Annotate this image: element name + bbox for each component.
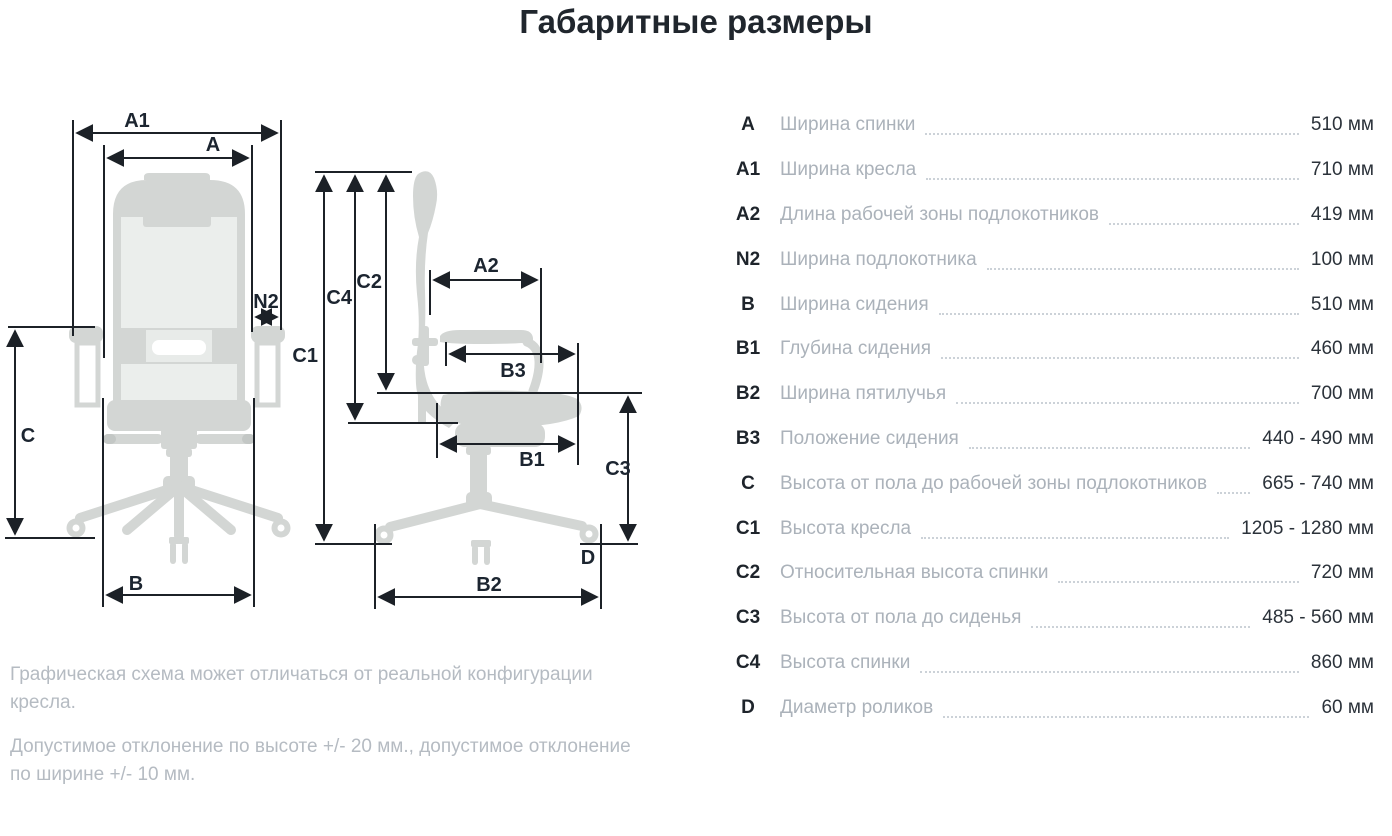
dimension-label: Высота от пола до сиденья <box>780 607 1021 629</box>
dimension-key: C2 <box>728 562 768 584</box>
table-row: A1 Ширина кресла 710 мм <box>728 148 1374 193</box>
dimension-value: 700 мм <box>1311 383 1374 405</box>
dimension-value: 485 - 560 мм <box>1262 607 1374 629</box>
dimension-label: Ширина пятилучья <box>780 383 946 405</box>
footnote-scheme: Графическая схема может отличаться от ре… <box>10 661 642 717</box>
dimension-label: Длина рабочей зоны подлокотников <box>780 204 1099 226</box>
dotted-leader <box>921 519 1229 539</box>
dimension-value: 1205 - 1280 мм <box>1241 518 1374 540</box>
dimension-value: 510 мм <box>1311 114 1374 136</box>
dimension-key: C1 <box>728 518 768 540</box>
dimension-key: A <box>728 114 768 136</box>
armrest-pad-right <box>251 326 285 343</box>
dimension-label: Положение сидения <box>780 428 959 450</box>
dimension-key: C4 <box>728 652 768 674</box>
backrest-side-tail <box>418 386 426 423</box>
dim-label-b2: B2 <box>476 574 502 596</box>
dimension-label: Высота кресла <box>780 518 911 540</box>
dimension-key: C <box>728 473 768 495</box>
dotted-leader <box>1058 563 1298 583</box>
footnote-tolerance: Допустимое отклонение по высоте +/- 20 м… <box>10 733 642 789</box>
gas-lift-front <box>170 450 188 478</box>
base-leg <box>390 504 480 527</box>
dimension-key: B <box>728 294 768 316</box>
caster-hub <box>73 525 80 532</box>
table-row: B Ширина сидения 510 мм <box>728 282 1374 327</box>
dimension-label: Ширина спинки <box>780 114 915 136</box>
armrest-bracket-knob <box>412 355 422 365</box>
dimension-label: Относительная высота спинки <box>780 562 1048 584</box>
dim-label-c: C <box>21 425 35 447</box>
dotted-leader <box>1031 608 1250 628</box>
base-leg <box>480 504 582 526</box>
seat-side <box>441 391 582 428</box>
table-row: B2 Ширина пятилучья 700 мм <box>728 372 1374 417</box>
dimension-label: Ширина подлокотника <box>780 249 977 271</box>
caster-hub <box>586 531 593 538</box>
table-row: C4 Высота спинки 860 мм <box>728 641 1374 686</box>
table-row: B3 Положение сидения 440 - 490 мм <box>728 417 1374 462</box>
lumbar-pill <box>152 340 206 355</box>
rod-cap-left <box>103 434 116 444</box>
dotted-leader <box>969 429 1250 449</box>
dim-label-c1: C1 <box>292 345 318 367</box>
dimension-label: Диаметр роликов <box>780 697 933 719</box>
dotted-leader <box>1217 474 1250 494</box>
chair-side-view <box>375 171 599 565</box>
table-row: D Диаметр роликов 60 мм <box>728 685 1374 730</box>
table-row: A Ширина спинки 510 мм <box>728 103 1374 148</box>
caster-fork-prong <box>484 545 490 565</box>
dotted-leader <box>987 250 1299 270</box>
headrest-panel <box>143 208 211 227</box>
dim-label-b: B <box>129 573 143 595</box>
dimension-label: Ширина кресла <box>780 159 916 181</box>
dimension-key: N2 <box>728 249 768 271</box>
dimension-value: 60 мм <box>1321 697 1374 719</box>
chair-front-view <box>67 173 291 564</box>
dimension-value: 510 мм <box>1311 294 1374 316</box>
page-title: Габаритные размеры <box>0 0 1392 44</box>
dimension-value: 419 мм <box>1311 204 1374 226</box>
dimension-value: 665 - 740 мм <box>1262 473 1374 495</box>
caster-fork-prong <box>170 542 176 564</box>
dim-label-a2: A2 <box>473 255 499 277</box>
dim-label-n2: N2 <box>253 291 279 313</box>
dim-label-c4: C4 <box>326 287 352 309</box>
dimension-label: Ширина сидения <box>780 294 929 316</box>
table-row: B1 Глубина сидения 460 мм <box>728 327 1374 372</box>
backrest-mesh <box>121 217 237 407</box>
side-view-dimensions: C1 C4 C2 A2 B3 B1 C3 B2 D <box>292 172 642 609</box>
dimension-key: A1 <box>728 159 768 181</box>
dotted-leader <box>926 160 1299 180</box>
dotted-leader <box>1109 205 1299 225</box>
chair-dimension-diagram: A1 A N2 C B <box>0 90 690 650</box>
armrest-side-support <box>527 342 539 391</box>
armrest-bracket-h <box>412 338 438 346</box>
armrest-post-left <box>77 343 98 405</box>
dim-label-a: A <box>206 134 220 156</box>
gas-lift-side <box>470 448 487 496</box>
dim-label-b3: B3 <box>500 360 526 382</box>
dimension-value: 460 мм <box>1311 338 1374 360</box>
dimension-key: C3 <box>728 607 768 629</box>
table-row: N2 Ширина подлокотника 100 мм <box>728 237 1374 282</box>
armrest-pad-left <box>69 326 103 343</box>
dotted-leader <box>941 339 1299 359</box>
dotted-leader <box>920 653 1299 673</box>
dimension-value: 440 - 490 мм <box>1262 428 1374 450</box>
dim-label-b1: B1 <box>519 449 545 471</box>
dimension-label: Глубина сидения <box>780 338 931 360</box>
dimension-value: 100 мм <box>1311 249 1374 271</box>
dimension-key: B1 <box>728 338 768 360</box>
dim-label-c2: C2 <box>356 271 382 293</box>
table-row: C Высота от пола до рабочей зоны подлоко… <box>728 461 1374 506</box>
table-row: A2 Длина рабочей зоны подлокотников 419 … <box>728 193 1374 238</box>
table-row: C1 Высота кресла 1205 - 1280 мм <box>728 506 1374 551</box>
dimension-key: B2 <box>728 383 768 405</box>
table-row: C2 Относительная высота спинки 720 мм <box>728 551 1374 596</box>
footnotes: Графическая схема может отличаться от ре… <box>10 661 642 805</box>
mechanism-front <box>161 424 197 449</box>
dotted-leader <box>956 384 1299 404</box>
dimension-key: A2 <box>728 204 768 226</box>
dimensions-table: A Ширина спинки 510 мм A1 Ширина кресла … <box>728 103 1374 730</box>
dimension-label: Высота от пола до рабочей зоны подлокотн… <box>780 473 1207 495</box>
caster-fork-prong <box>472 545 478 565</box>
dotted-leader <box>939 295 1299 315</box>
dimension-value: 710 мм <box>1311 159 1374 181</box>
dotted-leader <box>943 698 1309 718</box>
dimension-key: D <box>728 697 768 719</box>
caster-hub <box>381 532 388 539</box>
dimension-key: B3 <box>728 428 768 450</box>
armrest-post-right <box>257 343 278 405</box>
dimension-value: 720 мм <box>1311 562 1374 584</box>
dim-label-d: D <box>581 547 595 569</box>
dim-label-c3: C3 <box>605 458 631 480</box>
armrest-side-pad <box>440 330 533 344</box>
dimension-label: Высота спинки <box>780 652 910 674</box>
table-row: C3 Высота от пола до сиденья 485 - 560 м… <box>728 596 1374 641</box>
caster-hub <box>278 525 285 532</box>
dim-label-a1: A1 <box>124 110 150 132</box>
dotted-leader <box>925 115 1299 135</box>
dimension-value: 860 мм <box>1311 652 1374 674</box>
caster-fork-prong <box>182 542 188 564</box>
